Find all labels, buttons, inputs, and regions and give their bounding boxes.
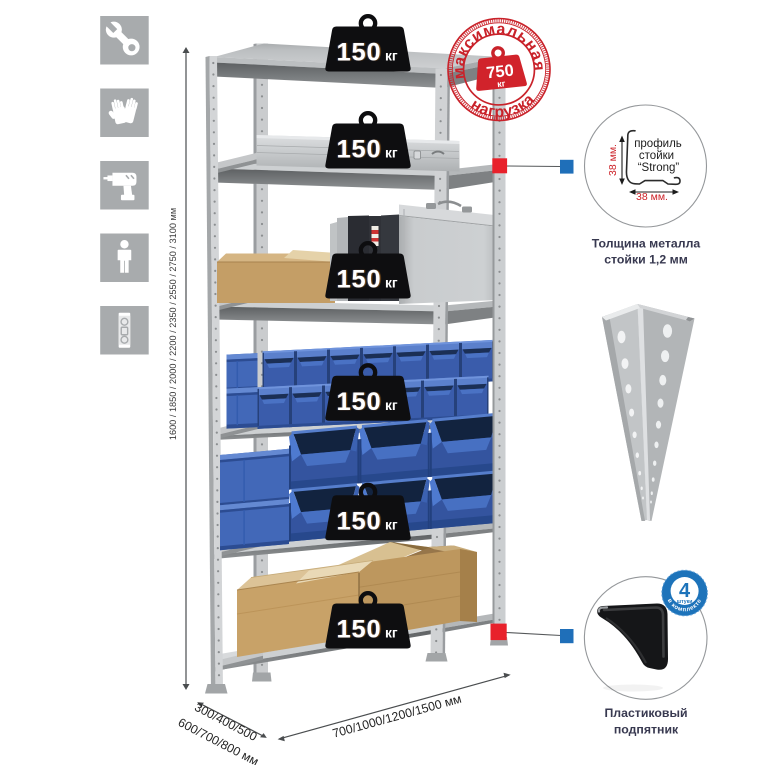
svg-text:кг: кг	[385, 276, 398, 291]
svg-text:профиль: профиль	[634, 138, 682, 150]
svg-text:кг: кг	[385, 518, 398, 533]
svg-text:кг: кг	[497, 78, 507, 89]
svg-text:38 мм.: 38 мм.	[636, 191, 668, 203]
svg-text:кг: кг	[385, 398, 398, 413]
svg-text:стойки 1,2 мм: стойки 1,2 мм	[604, 253, 688, 267]
svg-text:150: 150	[337, 388, 382, 416]
svg-text:кг: кг	[385, 49, 398, 64]
svg-text:кг: кг	[385, 626, 398, 641]
svg-text:150: 150	[337, 136, 382, 164]
svg-text:подпятник: подпятник	[614, 723, 679, 737]
svg-text:150: 150	[337, 616, 382, 644]
svg-text:“Strong”: “Strong”	[638, 162, 680, 174]
svg-text:Толщина металла: Толщина металла	[592, 237, 701, 251]
svg-text:38 мм.: 38 мм.	[607, 144, 619, 176]
svg-text:стойки: стойки	[639, 150, 674, 162]
svg-text:150: 150	[337, 39, 382, 67]
svg-text:150: 150	[337, 508, 382, 536]
svg-text:150: 150	[337, 266, 382, 294]
svg-text:1600 / 1850 / 2000 / 2200 / 23: 1600 / 1850 / 2000 / 2200 / 2350 / 2550 …	[168, 208, 178, 440]
svg-text:кг: кг	[385, 146, 398, 161]
svg-text:штуки: штуки	[677, 599, 693, 605]
svg-text:Пластиковый: Пластиковый	[604, 706, 687, 720]
